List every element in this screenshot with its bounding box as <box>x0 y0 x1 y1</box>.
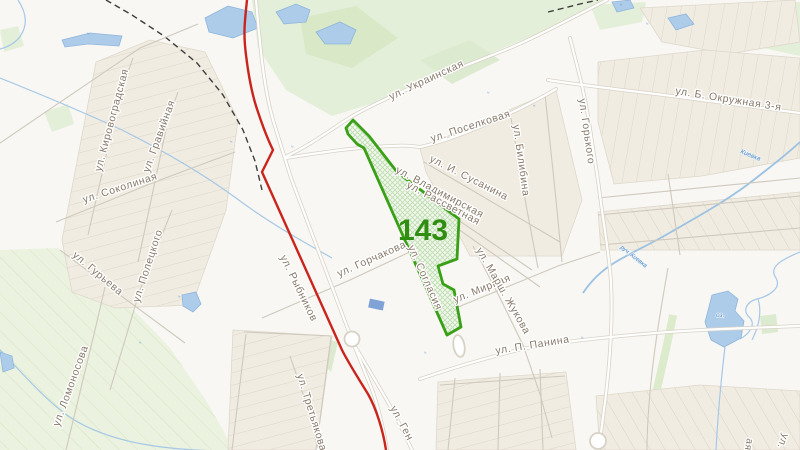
roundabout <box>345 332 360 347</box>
water-label: оз. <box>716 312 725 319</box>
lake <box>705 291 744 347</box>
region-number-label: 143 <box>398 214 448 247</box>
map-svg[interactable]: ул. Кировоградскаяул. Соколинаяул. Грави… <box>0 0 800 450</box>
map-canvas[interactable]: ул. Кировоградскаяул. Соколинаяул. Грави… <box>0 0 800 450</box>
roundabout <box>590 433 606 449</box>
street-label: ая <box>742 437 755 450</box>
